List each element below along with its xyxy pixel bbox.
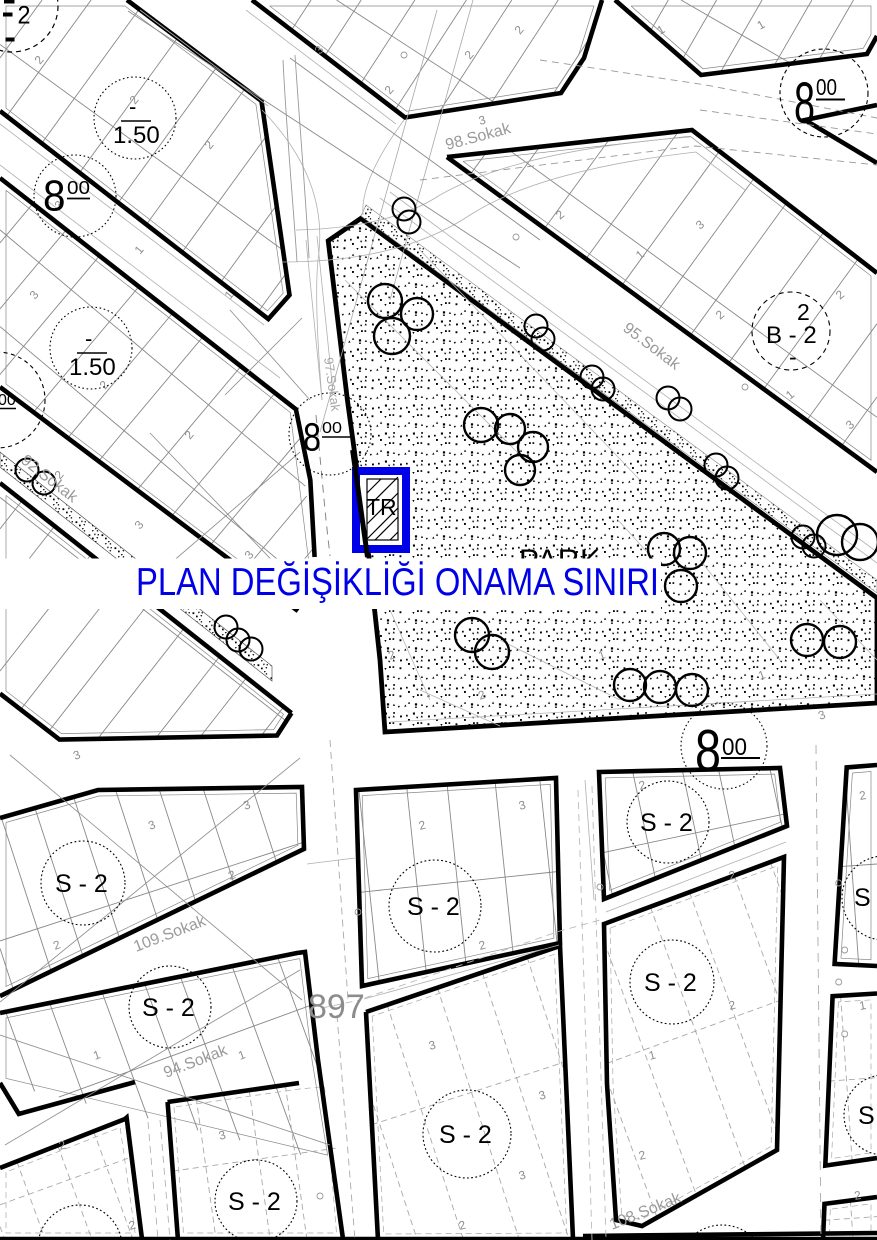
svg-text:8: 8 (695, 718, 721, 784)
svg-text:S - 2: S - 2 (228, 1188, 281, 1216)
svg-text:S - 2: S - 2 (644, 969, 697, 997)
svg-text:8: 8 (43, 172, 66, 221)
svg-text:S - 2: S - 2 (55, 870, 108, 898)
svg-text:S - 2: S - 2 (407, 893, 460, 921)
svg-text:897: 897 (308, 988, 365, 1026)
svg-text:1.50: 1.50 (113, 122, 160, 149)
svg-text:-: - (789, 344, 797, 370)
svg-text:1.50: 1.50 (69, 354, 116, 381)
svg-text:8: 8 (794, 71, 815, 136)
svg-text:S: S (858, 1102, 875, 1130)
svg-text:00: 00 (722, 734, 747, 761)
svg-text:S -: S - (854, 884, 877, 912)
svg-text:00: 00 (816, 74, 837, 100)
svg-text:PLAN DEĞİŞİKLİĞİ ONAMA SINIRI: PLAN DEĞİŞİKLİĞİ ONAMA SINIRI (136, 560, 659, 604)
svg-text:-: - (129, 94, 136, 119)
svg-text:2: 2 (18, 2, 31, 30)
svg-text:S - 2: S - 2 (439, 1121, 492, 1149)
svg-text:00: 00 (322, 420, 342, 437)
svg-text:00: 00 (0, 392, 16, 409)
svg-text:00: 00 (67, 177, 90, 198)
svg-text:TR: TR (366, 494, 397, 520)
svg-text:-: - (85, 326, 92, 351)
svg-text:S - 2: S - 2 (640, 809, 693, 837)
svg-text:8: 8 (303, 416, 321, 460)
svg-text:S - 2: S - 2 (142, 994, 195, 1022)
